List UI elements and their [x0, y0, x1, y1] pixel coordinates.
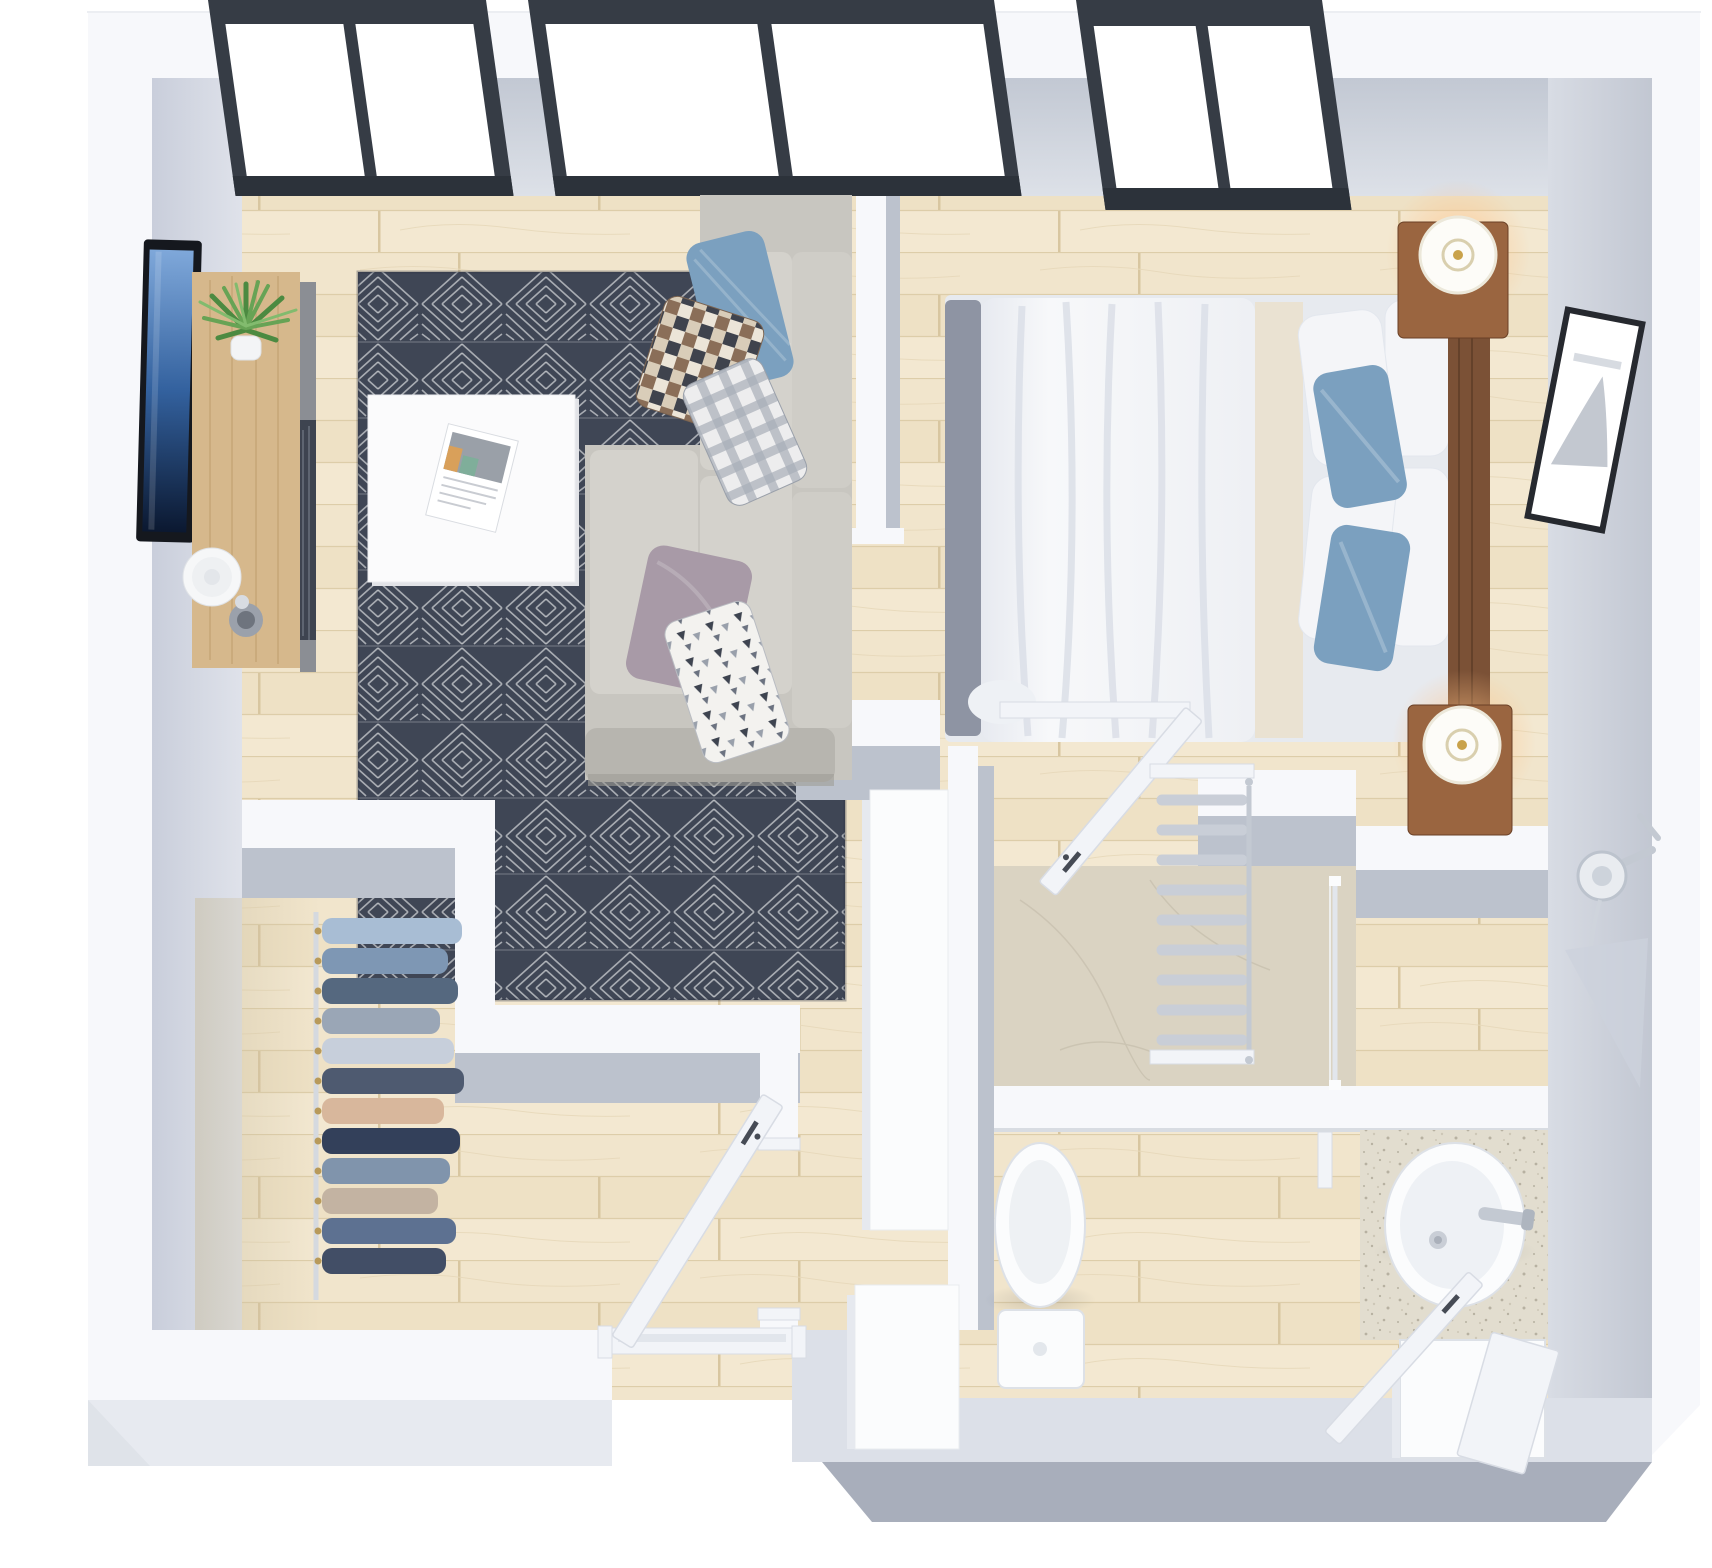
garment	[322, 1188, 438, 1214]
wall-living-hall	[455, 1005, 800, 1053]
wall-partition-endcap	[852, 528, 904, 544]
floorplan-stage: 3D isometric floor plan rendering of a o…	[0, 0, 1712, 1568]
garment	[322, 1098, 444, 1124]
garment	[322, 1008, 440, 1034]
sofa-back-cushion	[792, 492, 852, 728]
garment	[322, 1038, 454, 1064]
living-room-window-right	[528, 0, 1022, 196]
garment	[322, 1158, 450, 1184]
bathroom-door-threshold	[1000, 702, 1190, 718]
shoe-cabinet	[847, 1285, 959, 1449]
window-pane	[355, 24, 494, 176]
bedroom-window	[1076, 0, 1352, 210]
right-wall-inner-face	[1548, 78, 1652, 1400]
left-wall	[88, 12, 152, 1400]
wall-face	[455, 1053, 800, 1103]
threshold-step	[618, 1334, 786, 1342]
decorative-plate	[183, 548, 241, 606]
garment	[322, 1068, 464, 1094]
flush-button	[1033, 1342, 1047, 1356]
wardrobe-side	[862, 800, 870, 1230]
window-pane	[771, 24, 1004, 176]
vanity-door-jamb	[1318, 1132, 1332, 1188]
right-wall	[1652, 12, 1700, 1455]
closet-floor-shade	[195, 898, 320, 1330]
wall-face	[1356, 870, 1548, 918]
radiator-cap	[1150, 1050, 1254, 1064]
bottom-wall-bathroom-outer-face	[822, 1462, 1652, 1522]
bottom-wall-closet	[88, 1330, 612, 1400]
tall-wardrobe	[862, 790, 948, 1230]
bed-footboard	[945, 300, 981, 736]
entry-door-jamb	[598, 1326, 612, 1358]
bed-pillows	[1296, 300, 1449, 673]
garment	[322, 1128, 460, 1154]
garment	[322, 948, 448, 974]
garment	[322, 1248, 446, 1274]
living-room-window-left	[208, 0, 514, 196]
wall-step-connector	[455, 800, 495, 1005]
window-sill	[233, 176, 514, 196]
bathroom-ledge	[994, 1086, 1548, 1130]
window-pane	[225, 24, 364, 176]
closet-opening-jamb	[758, 1138, 800, 1150]
nightstand-top	[1386, 180, 1530, 338]
blanket-band	[1255, 302, 1303, 738]
garment	[322, 918, 462, 944]
closet-opening-jamb	[758, 1308, 800, 1320]
window-pane	[545, 24, 778, 176]
garment	[322, 1218, 456, 1244]
plant-pot	[231, 336, 261, 360]
window-sill	[553, 176, 1022, 196]
coffee-table	[368, 395, 579, 586]
bottom-wall-closet-outer-face	[88, 1400, 612, 1466]
window-sill	[1102, 188, 1351, 210]
floorplan-render: 3D isometric floor plan rendering of a o…	[0, 0, 1712, 1568]
toilet-seat	[1009, 1160, 1071, 1284]
wall-face	[978, 766, 994, 1330]
double-bed	[945, 290, 1490, 745]
garment	[322, 978, 458, 1004]
entry-door-jamb	[792, 1326, 806, 1358]
windows	[208, 0, 1352, 210]
console-drawer-front	[300, 420, 316, 640]
sink-basin-inner	[1400, 1161, 1504, 1289]
sofa-shadow	[588, 774, 834, 786]
wall-bathroom-left	[948, 746, 978, 1330]
radiator-cap	[1150, 764, 1254, 778]
cabinet-side	[847, 1295, 855, 1449]
